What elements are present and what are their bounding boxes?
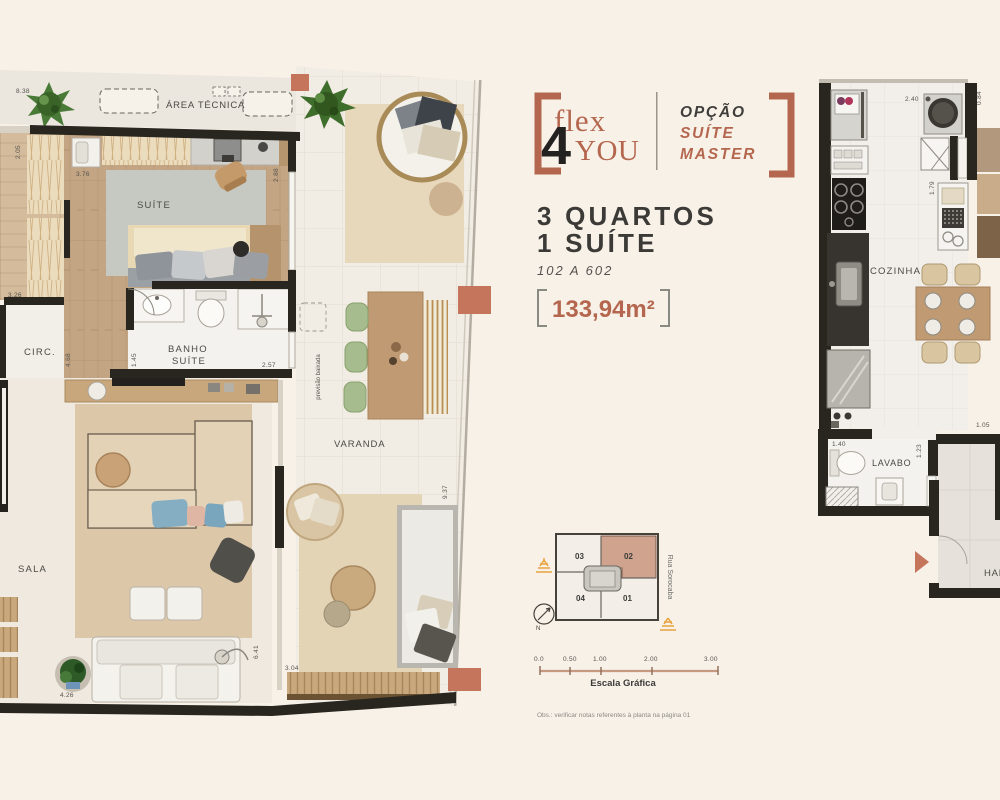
svg-text:N: N [536, 626, 540, 632]
svg-text:HALL: HALL [984, 568, 1000, 579]
svg-text:2.05: 2.05 [15, 145, 22, 159]
svg-text:3 QUARTOS: 3 QUARTOS [537, 201, 717, 231]
svg-text:9.37: 9.37 [442, 485, 449, 499]
svg-text:ÁREA TÉCNICA: ÁREA TÉCNICA [166, 100, 245, 111]
svg-text:Escala Gráfica: Escala Gráfica [590, 678, 656, 689]
svg-text:SUÍTE: SUÍTE [172, 356, 206, 367]
svg-text:0.84: 0.84 [976, 91, 983, 105]
svg-text:3.00: 3.00 [704, 656, 718, 663]
svg-text:1.45: 1.45 [131, 353, 138, 367]
svg-text:03: 03 [575, 552, 584, 561]
svg-text:Obs.: verificar notas referent: Obs.: verificar notas referentes à plant… [537, 712, 691, 719]
svg-text:Rua Sorocaba: Rua Sorocaba [666, 555, 673, 600]
svg-text:COZINHA: COZINHA [870, 266, 921, 277]
svg-text:04: 04 [576, 594, 585, 603]
svg-text:2.88: 2.88 [273, 168, 280, 182]
svg-text:133,94m²: 133,94m² [552, 296, 655, 323]
svg-text:CIRC.: CIRC. [24, 347, 56, 358]
svg-text:BANHO: BANHO [168, 344, 208, 355]
svg-text:3.76: 3.76 [76, 171, 90, 178]
svg-text:01: 01 [623, 594, 632, 603]
svg-text:4.26: 4.26 [60, 692, 74, 699]
svg-text:1.79: 1.79 [929, 181, 936, 195]
svg-text:LAVABO: LAVABO [872, 458, 911, 468]
svg-text:6.41: 6.41 [253, 645, 260, 659]
svg-text:SUÍTE: SUÍTE [137, 200, 171, 211]
svg-text:8.38: 8.38 [16, 88, 30, 95]
svg-text:3.04: 3.04 [285, 665, 299, 672]
svg-text:2.57: 2.57 [262, 362, 276, 369]
svg-text:OPÇÃO: OPÇÃO [680, 103, 746, 121]
svg-text:1.40: 1.40 [832, 441, 846, 448]
svg-text:1.00: 1.00 [593, 656, 607, 663]
svg-text:SUÍTE: SUÍTE [680, 125, 735, 142]
svg-text:1 SUÍTE: 1 SUÍTE [537, 228, 658, 258]
svg-text:2.00: 2.00 [644, 656, 658, 663]
svg-text:2.40: 2.40 [905, 96, 919, 103]
svg-text:4: 4 [541, 116, 571, 176]
svg-text:4.68: 4.68 [65, 353, 72, 367]
svg-text:YOU: YOU [575, 135, 639, 167]
svg-text:VARANDA: VARANDA [334, 439, 386, 450]
svg-text:102 A 602: 102 A 602 [537, 263, 613, 278]
svg-text:02: 02 [624, 552, 633, 561]
svg-text:1.05: 1.05 [976, 422, 990, 429]
svg-text:0.50: 0.50 [563, 656, 577, 663]
svg-text:SALA: SALA [18, 564, 47, 575]
svg-text:0.0: 0.0 [534, 656, 544, 663]
svg-text:MASTER: MASTER [680, 146, 756, 163]
svg-text:1.23: 1.23 [916, 444, 923, 458]
svg-text:previsão baixada: previsão baixada [316, 354, 322, 400]
